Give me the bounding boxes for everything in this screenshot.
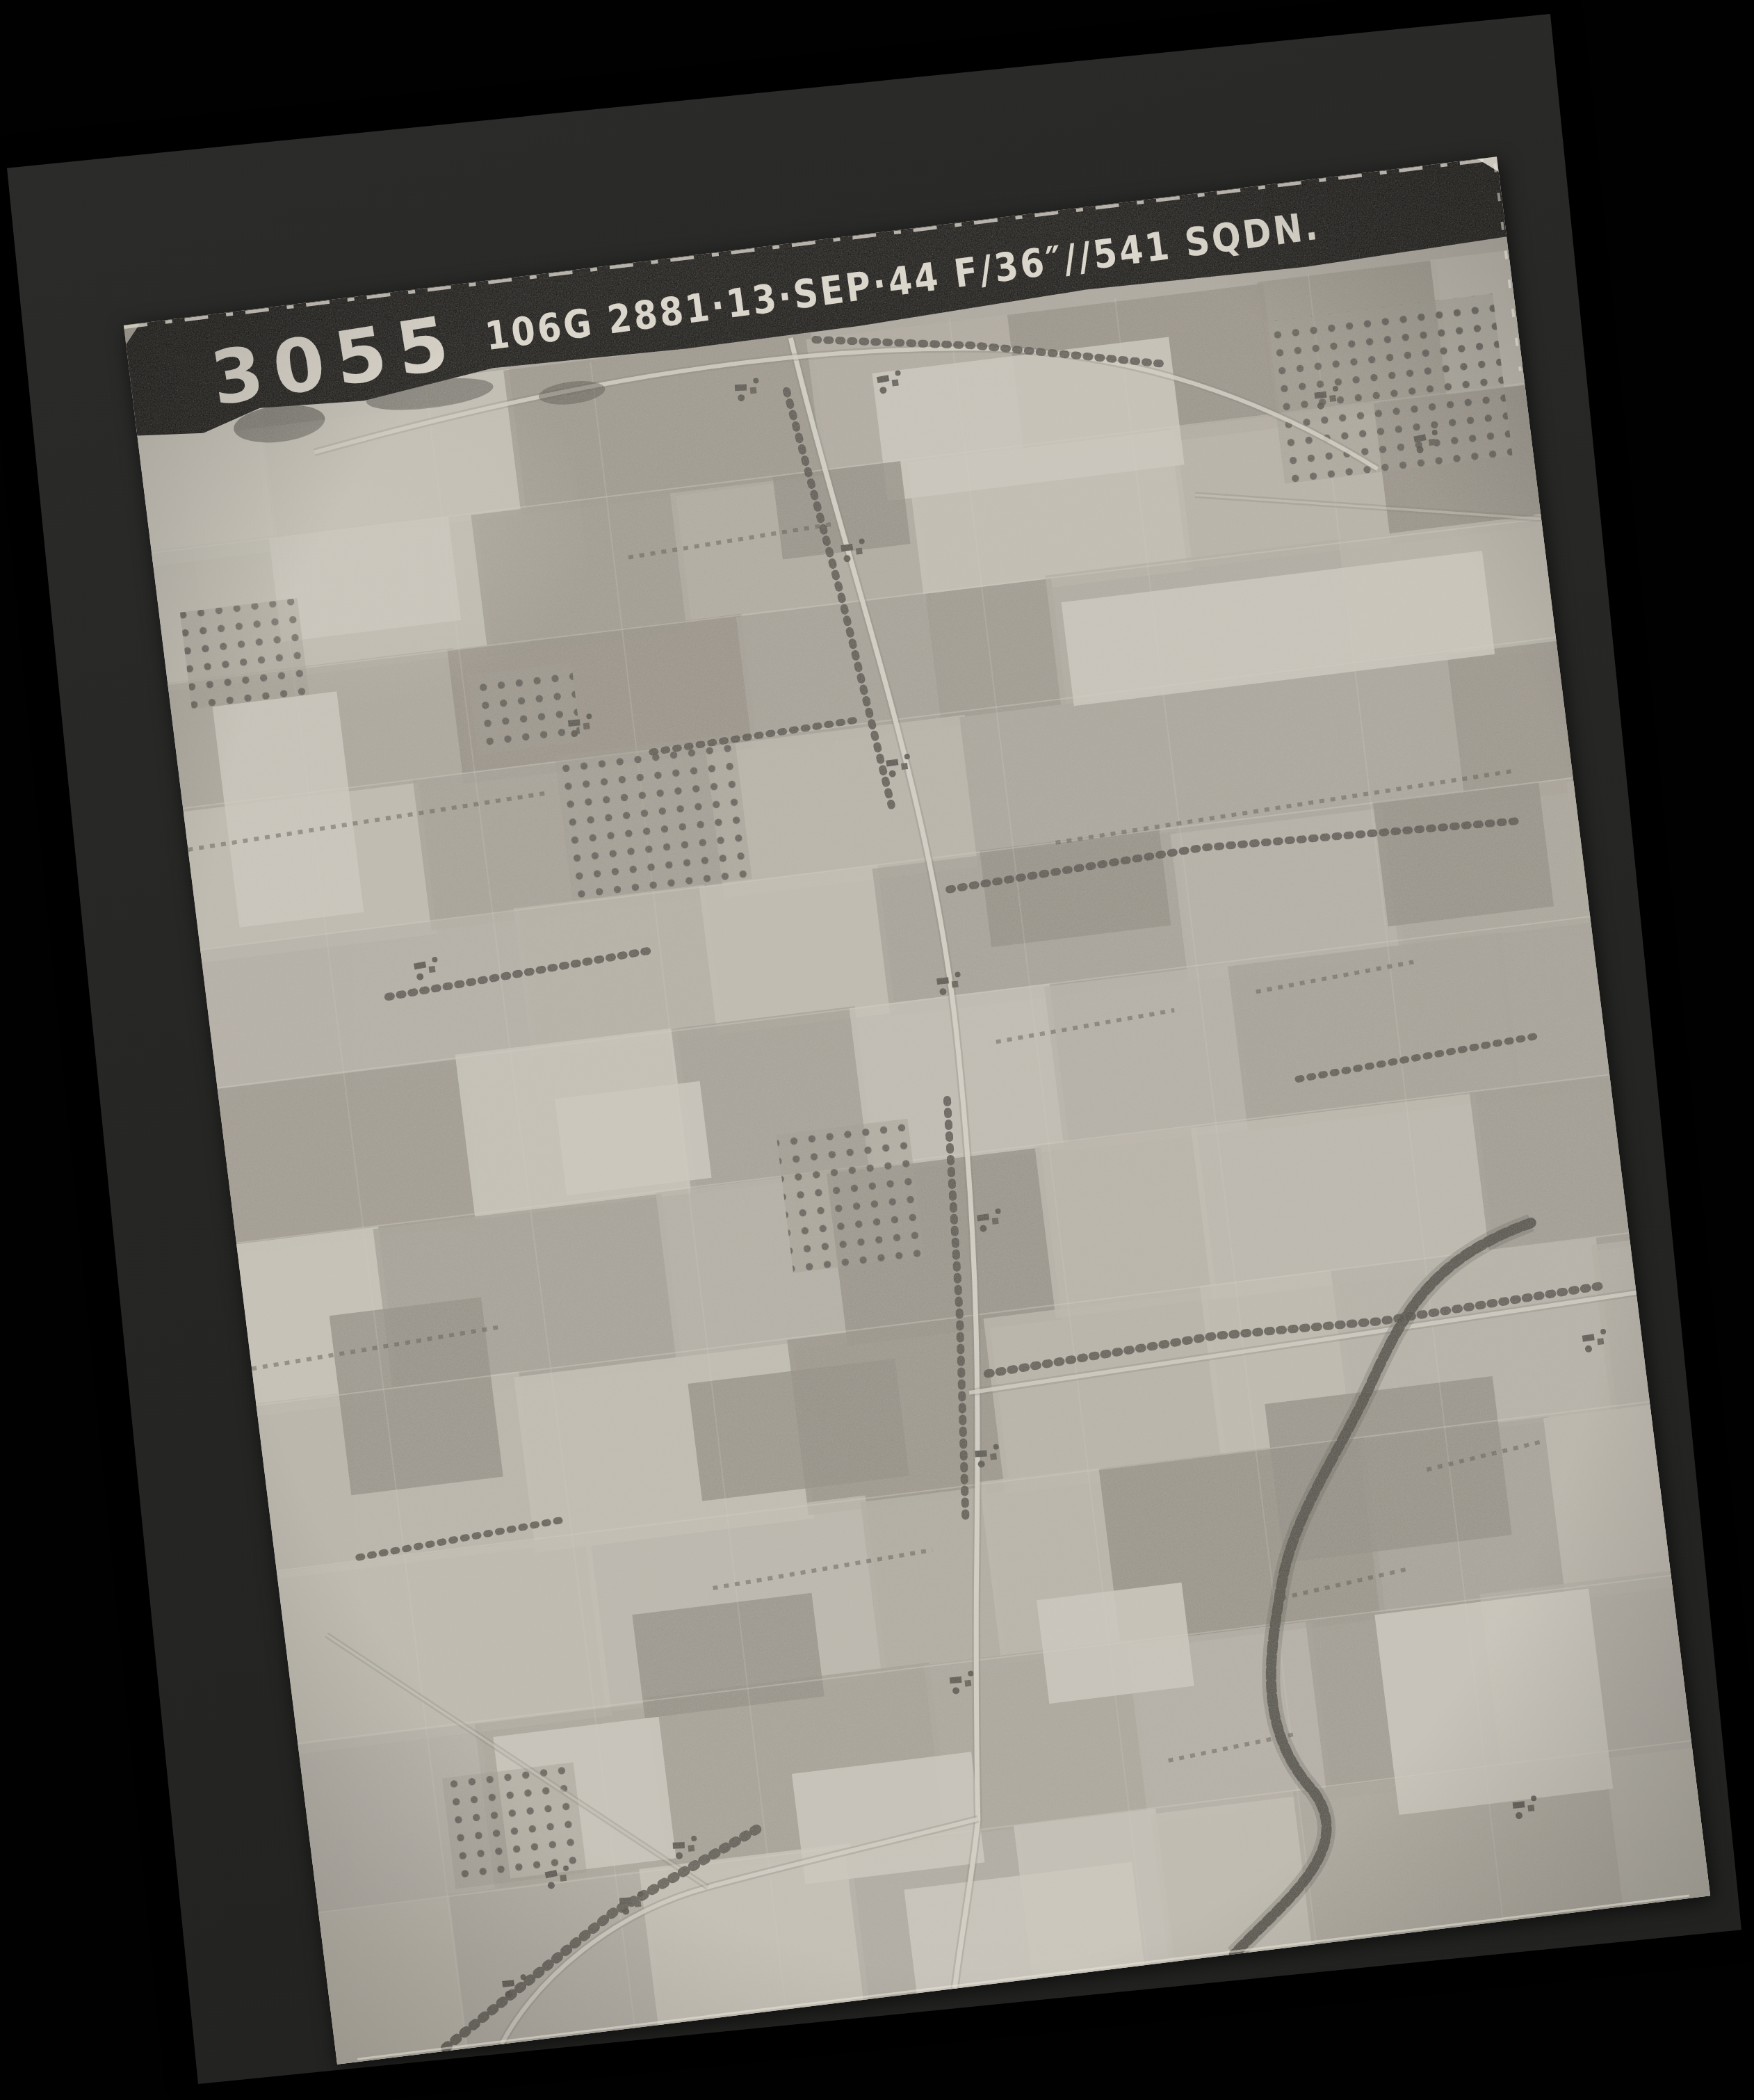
- scan-background: 3055 106G 2881·13·SEP·44 F/36″//541 SQDN…: [0, 0, 1754, 2100]
- aerial-photo: 3055 106G 2881·13·SEP·44 F/36″//541 SQDN…: [124, 156, 1710, 2065]
- vignette-overlay: [124, 156, 1710, 2065]
- aerial-photo-image: 3055 106G 2881·13·SEP·44 F/36″//541 SQDN…: [124, 156, 1710, 2065]
